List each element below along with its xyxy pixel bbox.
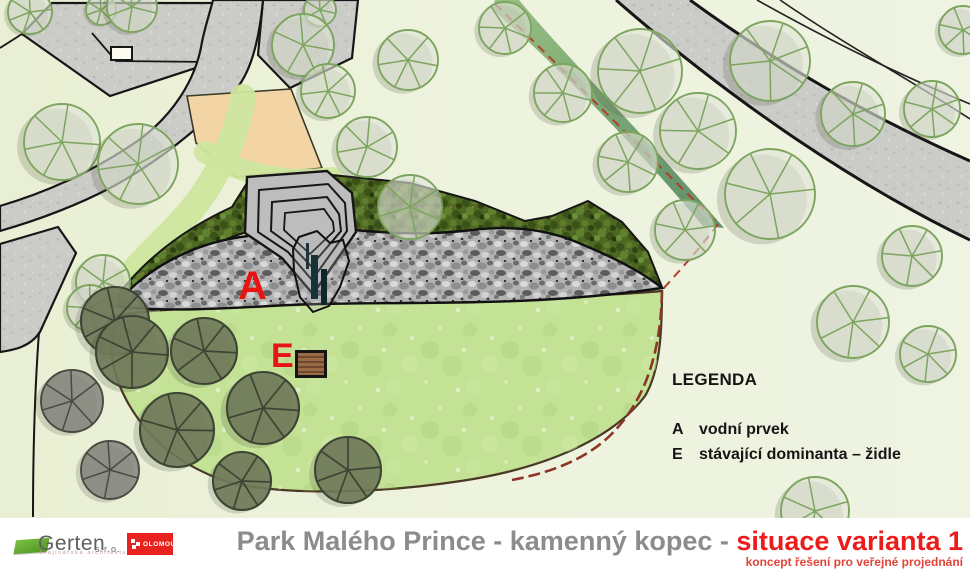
gerten-tagline: krajinářská architektura: [40, 550, 135, 556]
building-footprint: [111, 47, 132, 60]
puzzle-icon: [131, 539, 140, 549]
site-plan-drawing: [0, 0, 970, 520]
gerten-logo: Gerten s.r.o. krajinářská architektura O…: [0, 518, 190, 576]
plan-title: Park Malého Prince - kamenný kopec - sit…: [237, 526, 963, 557]
plan-title-name: Park Malého Prince - kamenný kopec -: [237, 526, 737, 556]
site-plan-map: [0, 0, 970, 520]
site-plan-page: A E LEGENDA A vodní prvek E stávající do…: [0, 0, 970, 576]
plan-subtitle: koncept řešení pro veřejné projednání: [746, 555, 963, 569]
olomouc-badge-label: OLOMOUC: [143, 541, 181, 548]
title-block: Gerten s.r.o. krajinářská architektura O…: [0, 518, 970, 576]
olomouc-badge: OLOMOUC: [127, 533, 173, 555]
plan-title-variant: situace varianta 1: [736, 526, 963, 556]
